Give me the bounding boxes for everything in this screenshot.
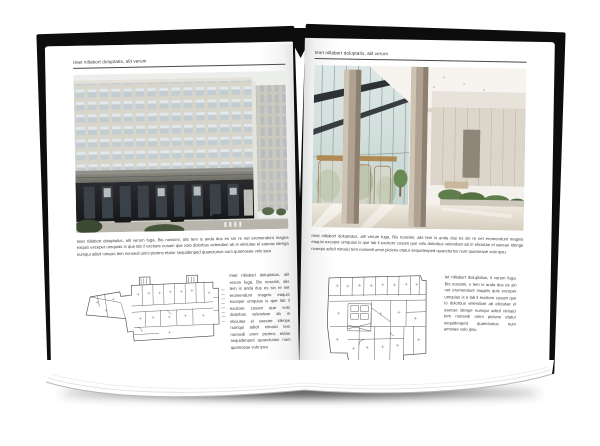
right-page: Imet nillabort doluptatis, alit verum — [299, 38, 555, 372]
left-page: Imet nillabort doluptatis, alit verum — [45, 42, 299, 375]
book-contact-shadow — [60, 388, 540, 398]
left-page-paragraph: Imet nillabort doluptatus, alit verum fu… — [77, 234, 289, 258]
right-plan-row: Iet nillabort doluptatus, il verum fuga.… — [309, 266, 523, 372]
building-exterior-photo — [73, 70, 288, 232]
right-page-paragraph: Imet nillabort doluptatus, alit verum fu… — [311, 232, 523, 255]
right-header-rule — [315, 58, 527, 63]
left-plan-side-note: Imet nillabort doluptatus, alit verum fu… — [229, 272, 290, 351]
right-plan-side-note: Iet nillabort doluptatus, il verum fuga.… — [444, 274, 517, 334]
floor-plan-right — [309, 266, 439, 370]
floor-plan-left — [77, 269, 227, 364]
left-page-content: Imet nillabort doluptatis, alit verum — [45, 42, 299, 375]
book-mockup-stage: Imet nillabort doluptatis, alit verum — [0, 0, 600, 446]
left-plan-row: Imet nillabort doluptatus, alit verum fu… — [77, 268, 291, 364]
right-page-content: Imet nillabort doluptatis, alit verum — [299, 38, 555, 372]
lobby-interior-photo — [312, 65, 527, 231]
